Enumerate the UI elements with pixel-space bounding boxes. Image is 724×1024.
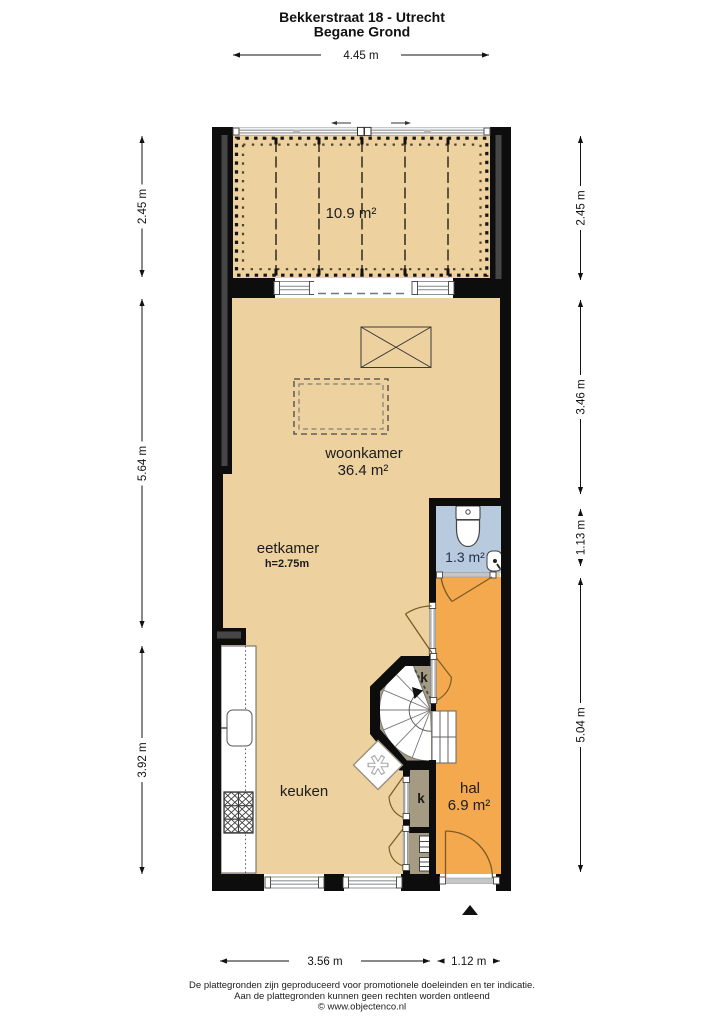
svg-text:5.64 m: 5.64 m: [137, 446, 149, 481]
svg-text:3.46 m: 3.46 m: [576, 379, 588, 414]
svg-text:k: k: [417, 791, 425, 806]
svg-text:36.4 m²: 36.4 m²: [338, 462, 389, 479]
svg-text:h=2.75m: h=2.75m: [265, 558, 310, 570]
svg-text:1.13 m: 1.13 m: [576, 520, 588, 555]
svg-text:2.45 m: 2.45 m: [576, 190, 588, 225]
svg-text:1.12 m: 1.12 m: [451, 956, 486, 968]
svg-text:k: k: [420, 670, 428, 685]
svg-text:hal: hal: [460, 780, 480, 797]
svg-text:5.04 m: 5.04 m: [576, 707, 588, 742]
svg-text:keuken: keuken: [280, 783, 328, 800]
svg-text:3.92 m: 3.92 m: [137, 742, 149, 777]
svg-text:© www.objectenco.nl: © www.objectenco.nl: [318, 1002, 406, 1013]
svg-text:De plattegronden zijn geproduc: De plattegronden zijn geproduceerd voor …: [189, 980, 535, 991]
svg-text:Aan de plattegronden kunnen ge: Aan de plattegronden kunnen geen rechten…: [234, 991, 490, 1002]
svg-text:3.56 m: 3.56 m: [307, 956, 342, 968]
svg-text:eetkamer: eetkamer: [257, 540, 320, 557]
svg-text:6.9 m²: 6.9 m²: [448, 797, 491, 814]
svg-text:1.3 m²: 1.3 m²: [445, 549, 485, 565]
svg-text:Begane Grond: Begane Grond: [314, 24, 410, 40]
svg-text:2.45 m: 2.45 m: [137, 189, 149, 224]
svg-text:4.45 m: 4.45 m: [343, 50, 378, 62]
svg-text:10.9 m²: 10.9 m²: [326, 205, 377, 222]
svg-text:woonkamer: woonkamer: [324, 445, 403, 462]
